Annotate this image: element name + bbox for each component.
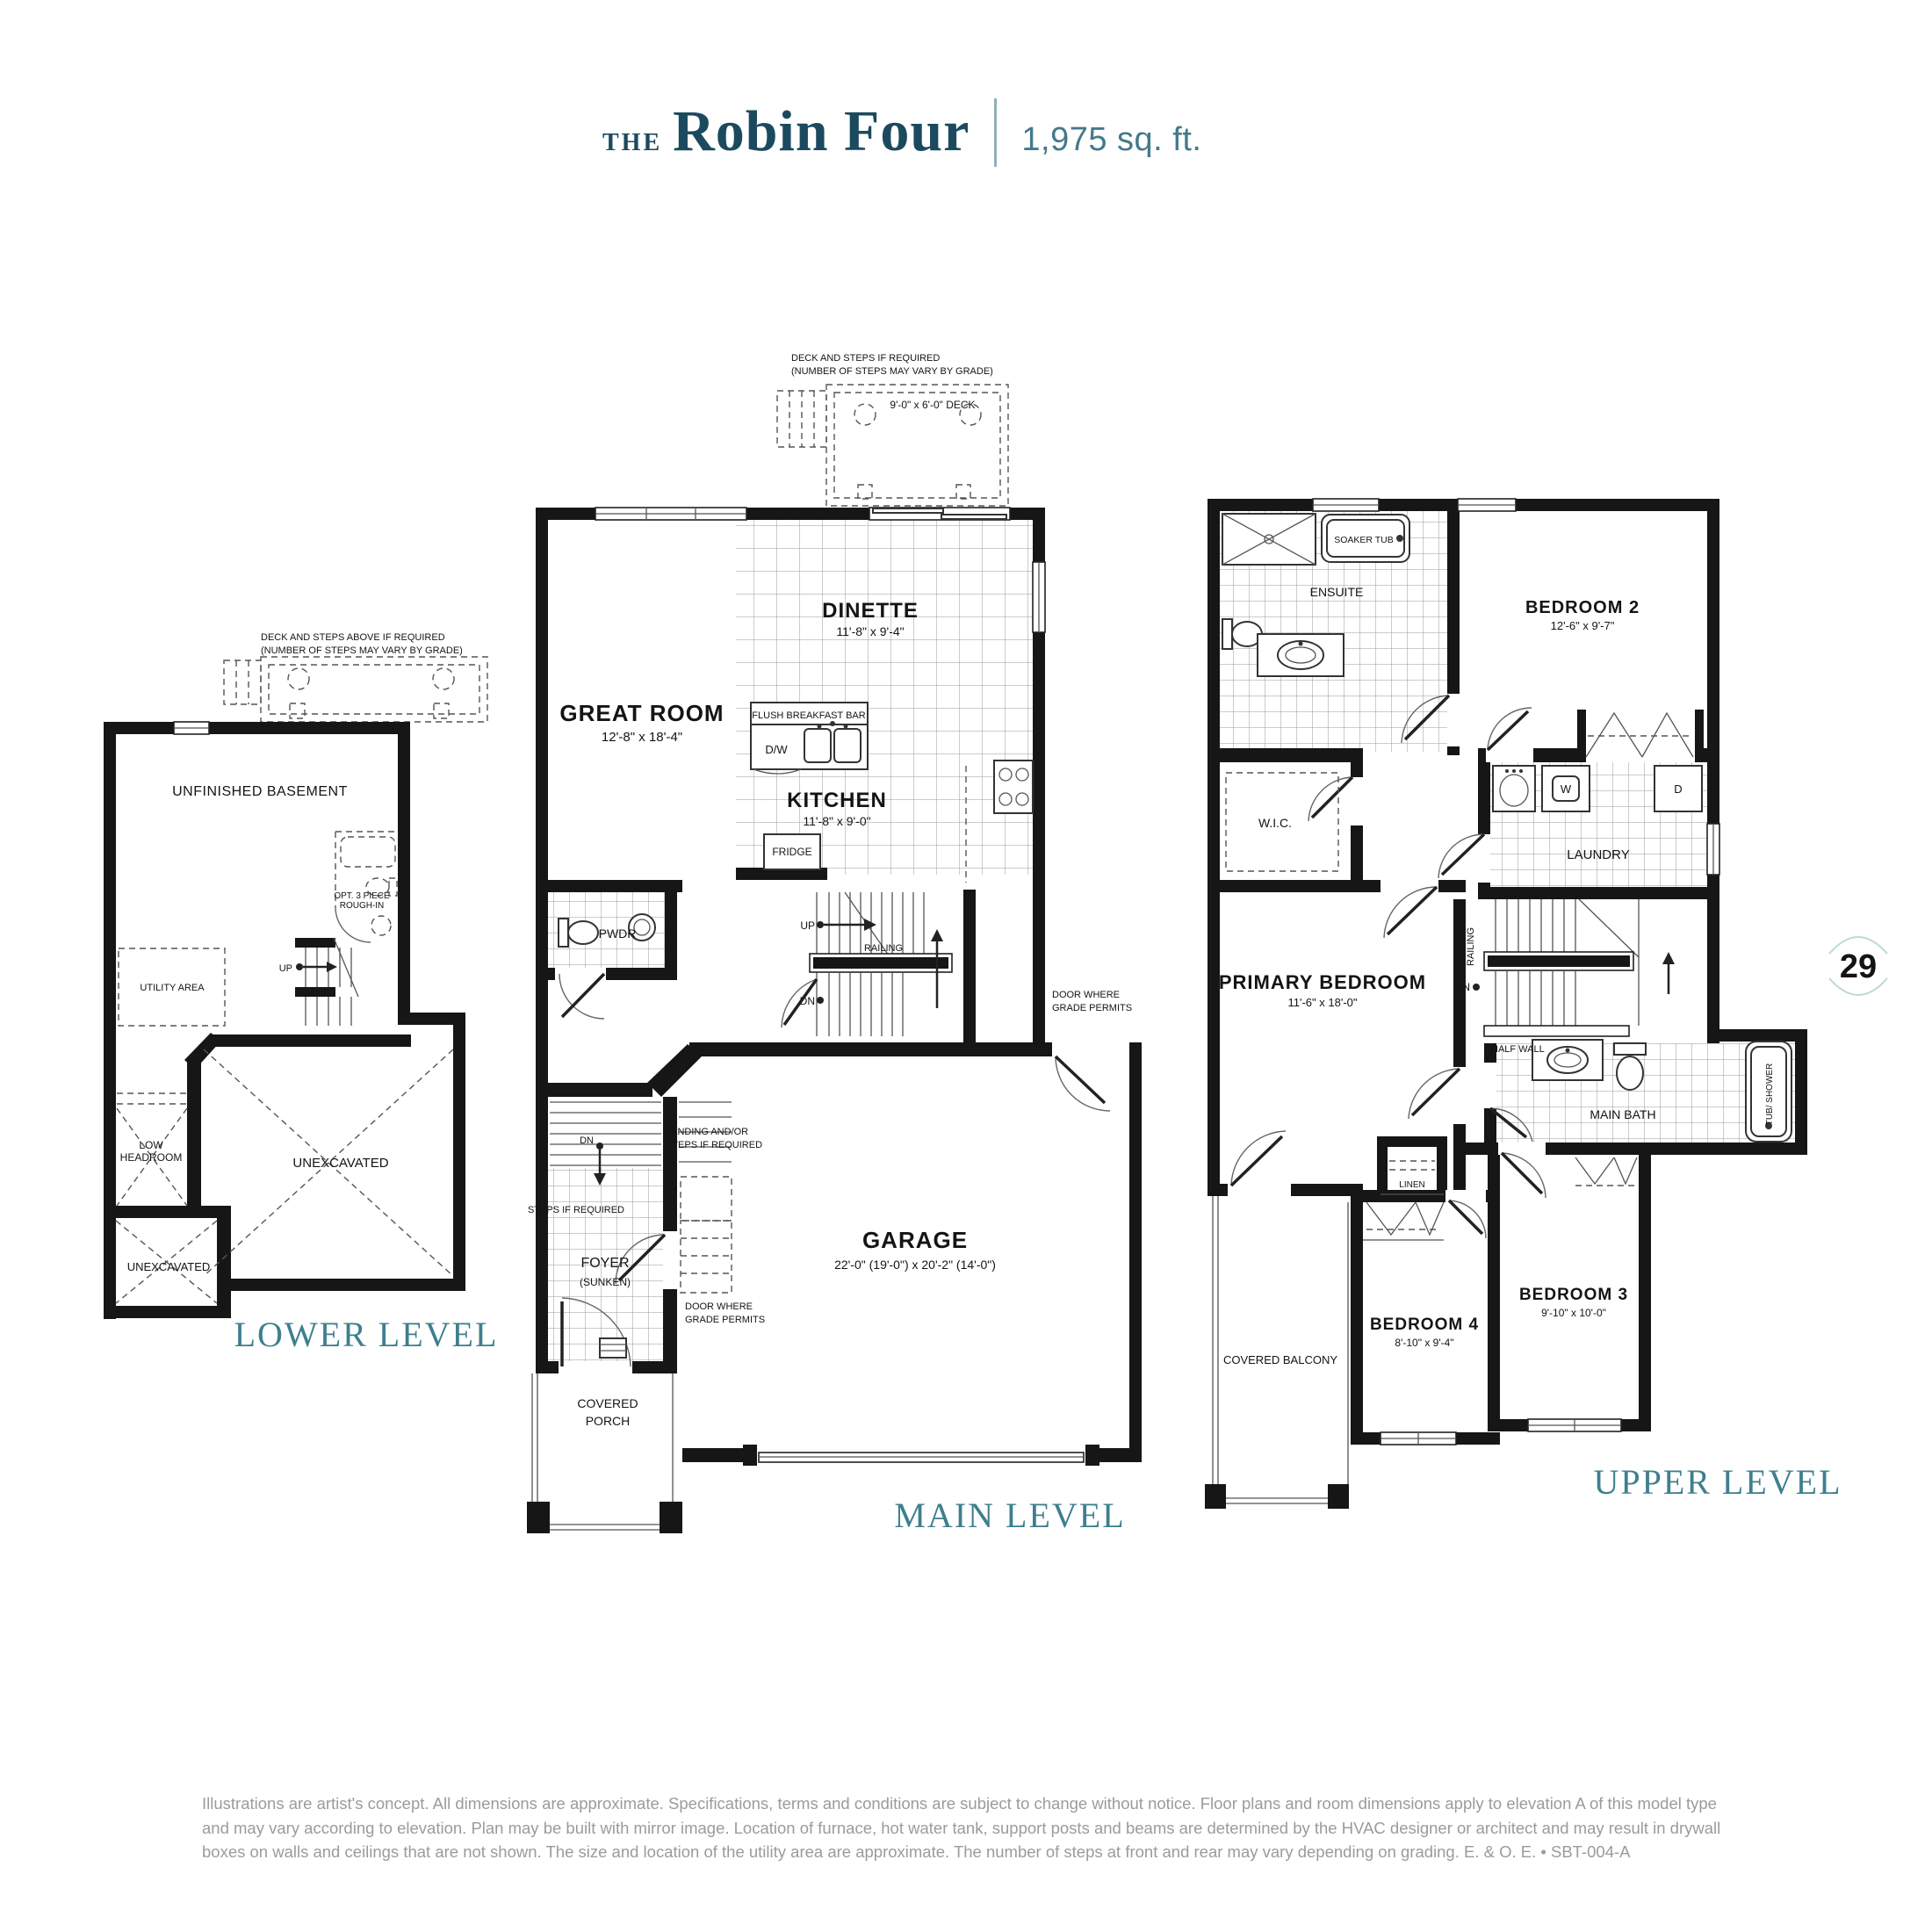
label-door-grade-r2: GRADE PERMITS — [1052, 1003, 1132, 1013]
opt-rough-in-bath — [335, 832, 398, 942]
label-porch-2: PORCH — [586, 1414, 631, 1428]
lower-level-title: LOWER LEVEL — [234, 1315, 499, 1354]
label-bedroom2-dim: 12'-6" x 9'-7" — [1551, 619, 1615, 632]
primary-door — [1381, 880, 1438, 938]
great-room-window — [595, 508, 746, 520]
label-dn-foyer: DN — [580, 1135, 594, 1146]
label-up-main: UP — [800, 919, 815, 932]
label-primary-bedroom: PRIMARY BEDROOM — [1219, 971, 1426, 993]
disclaimer-text: Illustrations are artist's concept. All … — [202, 1791, 1746, 1864]
label-pwdr: PWDR — [599, 926, 637, 941]
upper-level-plan: SOAKER TUB ENSUITE BEDROOM 2 12'-6" x 9'… — [1205, 499, 1842, 1509]
balcony-door — [1228, 1131, 1291, 1196]
wic-door — [1308, 777, 1363, 825]
label-washer: W — [1561, 782, 1572, 796]
page-number-badge: 29 — [1829, 937, 1887, 995]
upper-stairs — [1473, 899, 1675, 1036]
label-door-grade-r1: DOOR WHERE — [1052, 990, 1120, 1000]
label-bedroom4: BEDROOM 4 — [1370, 1316, 1479, 1334]
label-rough-in-1: OPT. 3 PIECE — [334, 891, 390, 901]
label-door-grade-f2: GRADE PERMITS — [685, 1315, 765, 1325]
lower-level-plan: DECK AND STEPS ABOVE IF REQUIRED (NUMBER… — [104, 632, 498, 1354]
label-bedroom2: BEDROOM 2 — [1525, 598, 1640, 617]
lower-walls — [104, 722, 465, 1319]
label-unexcavated-small: UNEXCAVATED — [127, 1260, 211, 1273]
laundry-door — [1438, 834, 1490, 883]
label-great-room: GREAT ROOM — [559, 700, 724, 726]
label-laundry: LAUNDRY — [1567, 847, 1629, 862]
dinette-window — [1033, 562, 1045, 632]
basement-window — [174, 722, 209, 734]
bedroom2-door — [1486, 708, 1533, 762]
label-covered-balcony: COVERED BALCONY — [1223, 1353, 1337, 1366]
label-primary-dim: 11'-6" x 18'-0" — [1288, 996, 1358, 1009]
garage-door — [743, 1445, 1099, 1466]
page-number: 29 — [1840, 948, 1877, 985]
main-level-plan: DECK AND STEPS IF REQUIRED (NUMBER OF ST… — [527, 353, 1142, 1535]
label-fridge: FRIDGE — [772, 846, 811, 858]
label-utility-area: UTILITY AREA — [140, 983, 205, 993]
deck-above-outline — [224, 657, 487, 722]
label-dryer: D — [1674, 782, 1682, 796]
bedroom4-door — [1445, 1190, 1486, 1238]
label-bedroom3-dim: 9'-10" x 10'-0" — [1541, 1307, 1606, 1319]
label-breakfast-bar: FLUSH BREAKFAST BAR — [752, 710, 865, 721]
label-low-headroom-1: LOW — [139, 1139, 163, 1151]
label-unfinished-basement: UNFINISHED BASEMENT — [172, 784, 348, 799]
label-railing-main: RAILING — [864, 943, 903, 954]
label-bedroom3: BEDROOM 3 — [1519, 1286, 1628, 1304]
label-up-basement: UP — [279, 963, 292, 974]
ensuite-toilet — [1222, 619, 1262, 649]
label-garage-dim: 22'-0" (19'-0") x 20'-2" (14'-0") — [834, 1258, 996, 1272]
main-level-title: MAIN LEVEL — [894, 1496, 1125, 1535]
main-stairs — [782, 892, 952, 1036]
main-deck-note-1: DECK AND STEPS IF REQUIRED — [791, 353, 940, 364]
label-landing-1: LANDING AND/OR — [666, 1127, 748, 1137]
label-dn-main: DN — [800, 995, 815, 1007]
main-deck-note-2: (NUMBER OF STEPS MAY VARY BY GRADE) — [791, 366, 993, 377]
label-garage: GARAGE — [862, 1227, 968, 1253]
upper-level-title: UPPER LEVEL — [1593, 1462, 1842, 1502]
bedroom3-closet — [1575, 1157, 1637, 1186]
label-linen: LINEN — [1399, 1180, 1424, 1190]
label-dn-upper: DN — [1455, 981, 1470, 993]
label-landing-2: STEPS IF REQUIRED — [666, 1140, 762, 1150]
label-unexcavated-large: UNEXCAVATED — [292, 1156, 388, 1171]
lower-deck-note-1: DECK AND STEPS ABOVE IF REQUIRED — [261, 632, 445, 643]
bedroom2-closet — [1577, 710, 1704, 762]
bath-toilet — [1614, 1043, 1646, 1090]
label-door-grade-f1: DOOR WHERE — [685, 1301, 753, 1312]
label-half-wall: HALF WALL — [1491, 1044, 1545, 1055]
ensuite-vanity — [1258, 634, 1344, 676]
label-steps-required: STEPS IF REQUIRED — [528, 1205, 624, 1215]
label-main-bath: MAIN BATH — [1590, 1107, 1655, 1121]
label-tub-shower: TUB/ SHOWER — [1765, 1063, 1775, 1126]
label-deck-size: 9'-0" x 6'-0" DECK — [890, 399, 975, 411]
basement-stairs — [295, 938, 358, 1026]
label-railing-upper: RAILING — [1466, 927, 1476, 966]
label-bedroom4-dim: 8'-10" x 9'-4" — [1395, 1337, 1453, 1349]
kitchen-dinette-tile — [736, 520, 1033, 875]
bedroom4-closet — [1363, 1202, 1444, 1240]
label-porch-1: COVERED — [577, 1396, 638, 1410]
patio-door — [869, 508, 1010, 520]
label-dinette: DINETTE — [822, 599, 919, 623]
label-dinette-dim: 11'-8" x 9'-4" — [836, 624, 904, 638]
bedroom3-door — [1498, 1143, 1546, 1198]
garage-entry-door — [1052, 1042, 1129, 1111]
label-dw: D/W — [765, 743, 788, 756]
label-kitchen: KITCHEN — [787, 789, 887, 812]
lower-deck-note-2: (NUMBER OF STEPS MAY VARY BY GRADE) — [261, 645, 463, 656]
label-wic: W.I.C. — [1258, 816, 1292, 830]
covered-balcony-outline — [1205, 1196, 1349, 1509]
label-low-headroom-2: HEADROOM — [120, 1151, 183, 1164]
label-soaker-tub: SOAKER TUB — [1334, 535, 1394, 545]
label-foyer: FOYER — [580, 1256, 629, 1271]
primary-hall-door — [1409, 1067, 1466, 1124]
pwdr-toilet — [559, 919, 598, 947]
ensuite-shower — [1222, 514, 1316, 565]
label-kitchen-dim: 11'-8" x 9'-0" — [803, 814, 870, 828]
label-great-room-dim: 12'-8" x 18'-4" — [602, 730, 682, 745]
label-sunken: (SUNKEN) — [580, 1276, 631, 1288]
floorplan-canvas: DECK AND STEPS ABOVE IF REQUIRED (NUMBER… — [0, 0, 1932, 1932]
pwdr-door — [555, 968, 606, 1019]
label-ensuite: ENSUITE — [1310, 585, 1364, 599]
label-rough-in-2: ROUGH-IN — [340, 901, 385, 911]
